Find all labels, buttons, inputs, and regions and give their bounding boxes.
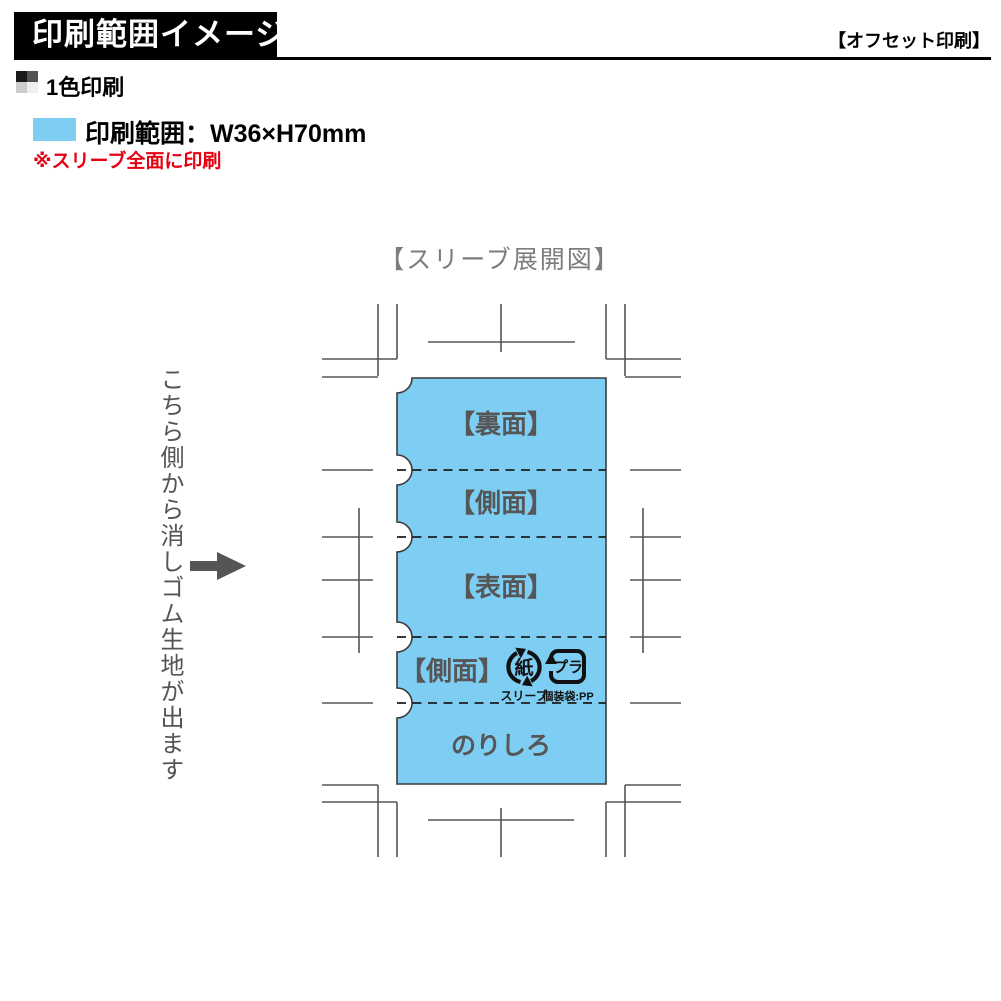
- print-note: ※スリーブ全面に印刷: [33, 146, 221, 173]
- diagram-title: 【スリーブ展開図】: [300, 240, 700, 276]
- checker-cell: [27, 71, 38, 82]
- print-spec-sheet: 印刷範囲イメージ 【オフセット印刷】 1色印刷 印刷範囲：W36×H70mm ※…: [0, 0, 1001, 1001]
- sleeve-development-diagram: 【裏面】 【側面】 【表面】 【側面】 のりしろ 紙 スリーブ プラ 個装袋:P…: [300, 290, 700, 890]
- arrow-shaft: [190, 561, 217, 571]
- checker-cell: [16, 82, 27, 93]
- crop-mark-bottom-right: [606, 785, 681, 857]
- crop-mark-top-left: [322, 304, 397, 377]
- crop-mark-right: [630, 470, 681, 703]
- crop-mark-bottom-left: [322, 785, 397, 857]
- print-area-label: 印刷範囲：W36×H70mm: [85, 114, 366, 150]
- print-area-swatch-icon: [33, 118, 76, 141]
- panel-label-glue-flap: のりしろ: [451, 732, 551, 760]
- crop-mark-left: [322, 470, 373, 703]
- page-title: 印刷範囲イメージ: [14, 12, 277, 57]
- color-mode-label: 1色印刷: [46, 70, 124, 102]
- crop-mark-top-center: [428, 304, 575, 352]
- checker-cell: [27, 82, 38, 93]
- print-method-label: 【オフセット印刷】: [828, 27, 990, 53]
- panel-label-side2: 【側面】: [400, 656, 504, 686]
- paper-recycle-caption: スリーブ: [500, 688, 547, 703]
- crop-mark-top-right: [606, 304, 681, 377]
- plastic-recycle-symbol: プラ: [553, 659, 583, 676]
- panel-label-side1: 【側面】: [449, 488, 553, 518]
- arrow-head: [217, 552, 246, 580]
- crop-mark-bottom-center: [428, 808, 574, 857]
- header-divider: [14, 57, 991, 60]
- one-color-swatch-icon: [16, 71, 38, 93]
- plastic-recycle-caption: 個装袋:PP: [541, 689, 593, 703]
- panel-label-front: 【表面】: [449, 572, 553, 602]
- checker-cell: [16, 71, 27, 82]
- side-note-vertical: こちら側から消しゴム生地が出ます: [152, 367, 187, 787]
- direction-arrow-icon: [189, 552, 249, 580]
- panel-label-back: 【裏面】: [449, 409, 553, 439]
- paper-recycle-symbol: 紙: [514, 656, 533, 679]
